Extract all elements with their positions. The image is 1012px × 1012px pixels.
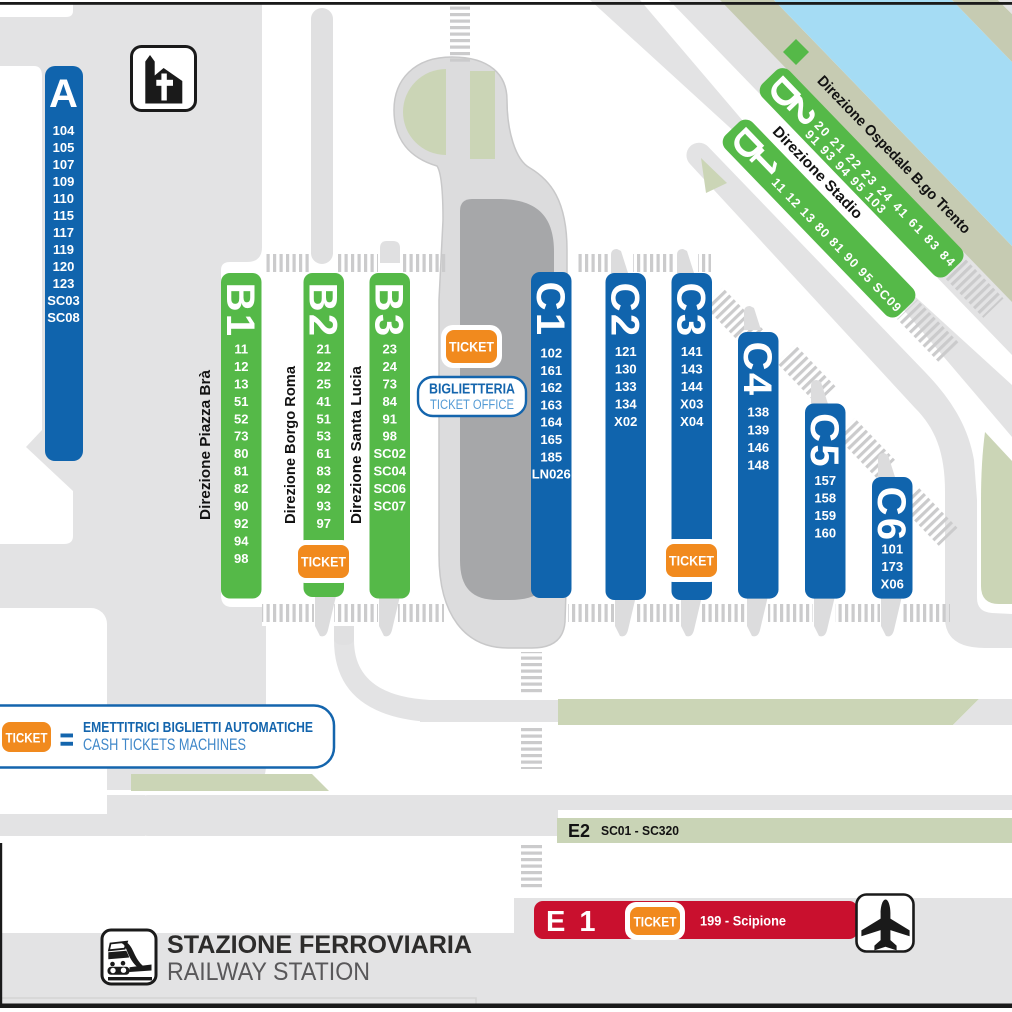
svg-text:121: 121: [615, 344, 637, 359]
svg-text:B: B: [218, 283, 262, 312]
svg-text:C: C: [735, 342, 779, 371]
svg-text:148: 148: [747, 458, 769, 473]
svg-text:SC08: SC08: [47, 310, 80, 325]
svg-text:EMETTITRICI BIGLIETTI AUTOMATI: EMETTITRICI BIGLIETTI AUTOMATICHE: [83, 719, 313, 736]
svg-text:160: 160: [814, 526, 836, 541]
svg-text:134: 134: [615, 397, 637, 412]
svg-text:3: 3: [366, 314, 410, 336]
svg-text:SC04: SC04: [373, 464, 406, 479]
svg-text:24: 24: [383, 359, 398, 374]
svg-text:Direzione Santa Lucia: Direzione Santa Lucia: [348, 365, 365, 524]
svg-text:BIGLIETTERIA: BIGLIETTERIA: [429, 382, 515, 398]
svg-text:104: 104: [53, 123, 75, 138]
svg-text:173: 173: [881, 559, 903, 574]
svg-text:139: 139: [747, 422, 769, 437]
svg-text:B: B: [300, 283, 344, 312]
svg-text:123: 123: [53, 276, 75, 291]
svg-text:2: 2: [602, 314, 646, 336]
svg-text:11: 11: [234, 342, 248, 357]
svg-text:C: C: [802, 413, 846, 442]
svg-text:52: 52: [234, 411, 248, 426]
svg-text:2: 2: [300, 314, 344, 336]
svg-text:91: 91: [383, 411, 397, 426]
svg-text:1: 1: [528, 313, 572, 335]
svg-text:SC06: SC06: [373, 481, 406, 496]
svg-text:102: 102: [540, 346, 562, 361]
svg-text:STAZIONE FERROVIARIA: STAZIONE FERROVIARIA: [167, 931, 472, 959]
svg-text:TICKET: TICKET: [634, 915, 678, 930]
svg-text:84: 84: [383, 394, 398, 409]
svg-text:51: 51: [317, 411, 331, 426]
svg-text:98: 98: [234, 551, 248, 566]
svg-text:22: 22: [317, 359, 331, 374]
svg-text:101: 101: [881, 542, 903, 557]
svg-text:105: 105: [53, 140, 75, 155]
svg-text:159: 159: [814, 508, 836, 523]
svg-text:94: 94: [234, 533, 249, 548]
svg-text:RAILWAY STATION: RAILWAY STATION: [167, 958, 370, 986]
svg-text:6: 6: [869, 518, 913, 540]
svg-text:93: 93: [317, 499, 331, 514]
svg-text:B: B: [366, 283, 410, 312]
svg-text:143: 143: [681, 362, 703, 377]
svg-text:TICKET: TICKET: [301, 555, 347, 570]
svg-text:53: 53: [317, 429, 331, 444]
svg-text:X02: X02: [614, 414, 637, 429]
svg-text:X03: X03: [680, 397, 703, 412]
svg-text:90: 90: [234, 499, 248, 514]
svg-text:115: 115: [53, 208, 74, 223]
svg-text:3: 3: [668, 314, 712, 336]
svg-text:C: C: [869, 487, 913, 516]
svg-text:51: 51: [234, 394, 248, 409]
svg-text:LN026: LN026: [532, 467, 571, 482]
svg-text:C: C: [602, 283, 646, 312]
svg-text:E2: E2: [568, 821, 590, 841]
svg-text:119: 119: [53, 242, 74, 257]
svg-text:133: 133: [615, 379, 637, 394]
svg-text:92: 92: [234, 516, 248, 531]
svg-text:A: A: [49, 72, 78, 116]
svg-text:5: 5: [802, 444, 846, 466]
svg-text:82: 82: [234, 481, 248, 496]
svg-text:61: 61: [317, 446, 331, 461]
svg-text:73: 73: [383, 376, 397, 391]
svg-text:Direzione Piazza Brà: Direzione Piazza Brà: [197, 369, 214, 520]
svg-text:98: 98: [383, 429, 397, 444]
svg-text:138: 138: [747, 405, 769, 420]
svg-text:TICKET: TICKET: [669, 554, 715, 569]
svg-text:161: 161: [540, 363, 562, 378]
svg-text:165: 165: [540, 432, 562, 447]
svg-text:130: 130: [615, 362, 637, 377]
svg-text:158: 158: [814, 491, 836, 506]
svg-text:185: 185: [540, 449, 562, 464]
svg-text:199 - Scipione: 199 - Scipione: [700, 914, 786, 929]
svg-text:1: 1: [218, 314, 262, 336]
svg-text:TICKET: TICKET: [449, 340, 495, 355]
svg-text:107: 107: [53, 157, 75, 172]
svg-text:4: 4: [735, 373, 779, 396]
svg-text:Direzione Borgo Roma: Direzione Borgo Roma: [282, 365, 299, 524]
svg-text:TICKET OFFICE: TICKET OFFICE: [430, 397, 514, 412]
svg-text:110: 110: [53, 191, 74, 206]
svg-text:41: 41: [317, 394, 331, 409]
svg-text:83: 83: [317, 464, 331, 479]
svg-text:120: 120: [53, 259, 75, 274]
svg-text:109: 109: [53, 174, 75, 189]
svg-text:13: 13: [234, 376, 248, 391]
svg-text:162: 162: [540, 380, 562, 395]
svg-text:TICKET: TICKET: [6, 731, 49, 746]
svg-text:97: 97: [317, 516, 331, 531]
svg-text:141: 141: [681, 344, 703, 359]
svg-text:C: C: [668, 283, 712, 312]
svg-text:X06: X06: [881, 576, 904, 591]
svg-text:21: 21: [317, 342, 331, 357]
svg-text:SC01 - SC320: SC01 - SC320: [601, 824, 679, 838]
svg-text:X04: X04: [680, 414, 704, 429]
svg-text:117: 117: [53, 225, 74, 240]
svg-text:146: 146: [747, 440, 769, 455]
svg-text:92: 92: [317, 481, 331, 496]
svg-text:73: 73: [234, 429, 248, 444]
svg-text:SC07: SC07: [373, 499, 406, 514]
svg-text:23: 23: [383, 342, 397, 357]
svg-text:164: 164: [540, 415, 562, 430]
svg-text:SC03: SC03: [47, 293, 80, 308]
svg-text:CASH TICKETS MACHINES: CASH TICKETS MACHINES: [83, 736, 246, 754]
svg-text:C: C: [528, 282, 572, 311]
svg-text:163: 163: [540, 397, 562, 412]
svg-text:157: 157: [814, 473, 836, 488]
svg-text:12: 12: [234, 359, 248, 374]
svg-text:E 1: E 1: [546, 906, 599, 938]
svg-text:SC02: SC02: [373, 446, 406, 461]
svg-text:81: 81: [234, 464, 248, 479]
svg-text:80: 80: [234, 446, 248, 461]
svg-text:25: 25: [317, 376, 331, 391]
svg-text:144: 144: [681, 379, 703, 394]
